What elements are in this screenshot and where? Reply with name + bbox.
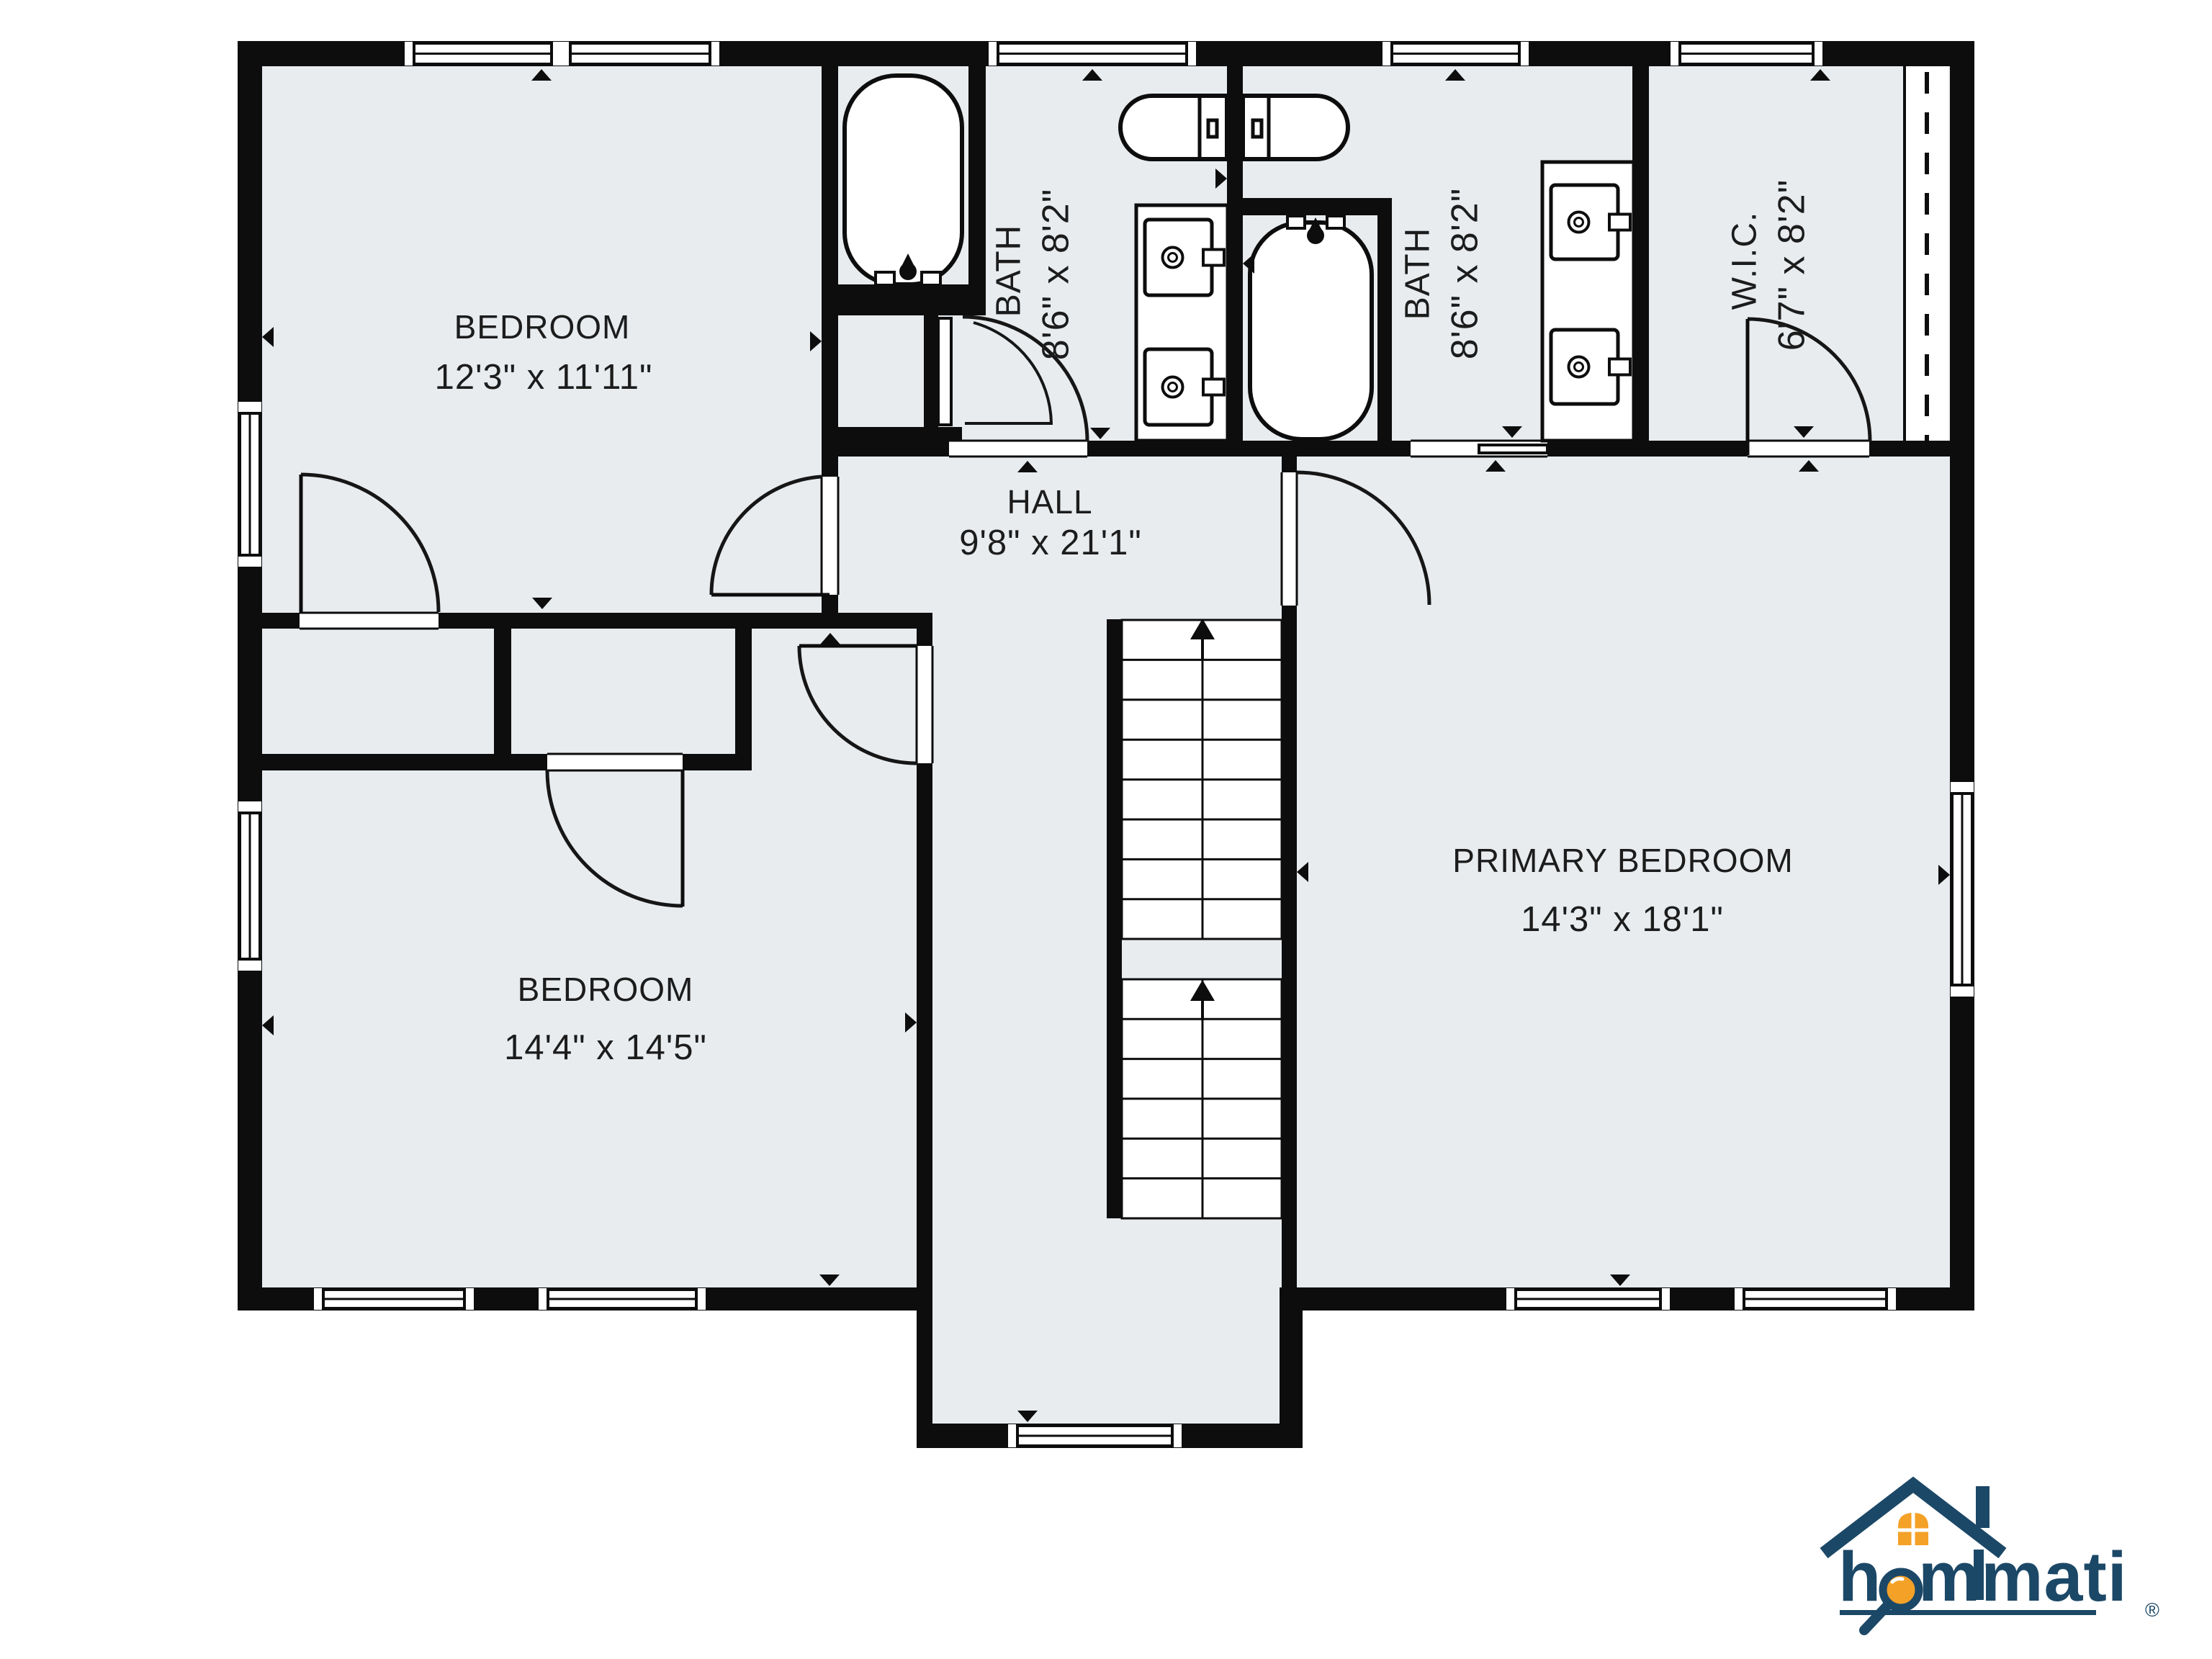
svg-text:mmati: mmati <box>1918 1537 2128 1616</box>
svg-text:8'6" x 8'2": 8'6" x 8'2" <box>1035 189 1077 360</box>
svg-text:BEDROOM: BEDROOM <box>518 971 694 1008</box>
svg-text:BATH: BATH <box>990 225 1028 317</box>
svg-text:BEDROOM: BEDROOM <box>454 308 631 346</box>
svg-text:9'8" x 21'1": 9'8" x 21'1" <box>959 523 1141 562</box>
svg-text:12'3" x 11'11": 12'3" x 11'11" <box>435 358 653 397</box>
svg-text:HALL: HALL <box>1007 483 1092 521</box>
svg-text:h: h <box>1838 1537 1881 1616</box>
svg-text:14'4" x 14'5": 14'4" x 14'5" <box>504 1028 707 1067</box>
svg-text:PRIMARY BEDROOM: PRIMARY BEDROOM <box>1452 842 1793 879</box>
svg-text:W.I.C.: W.I.C. <box>1726 212 1764 310</box>
svg-text:8'6" x 8'2": 8'6" x 8'2" <box>1444 188 1486 359</box>
svg-text:®: ® <box>2145 1599 2159 1621</box>
svg-text:6'7" x 8'2": 6'7" x 8'2" <box>1771 179 1813 351</box>
svg-text:BATH: BATH <box>1399 228 1437 320</box>
svg-text:14'3" x 18'1": 14'3" x 18'1" <box>1521 900 1724 939</box>
